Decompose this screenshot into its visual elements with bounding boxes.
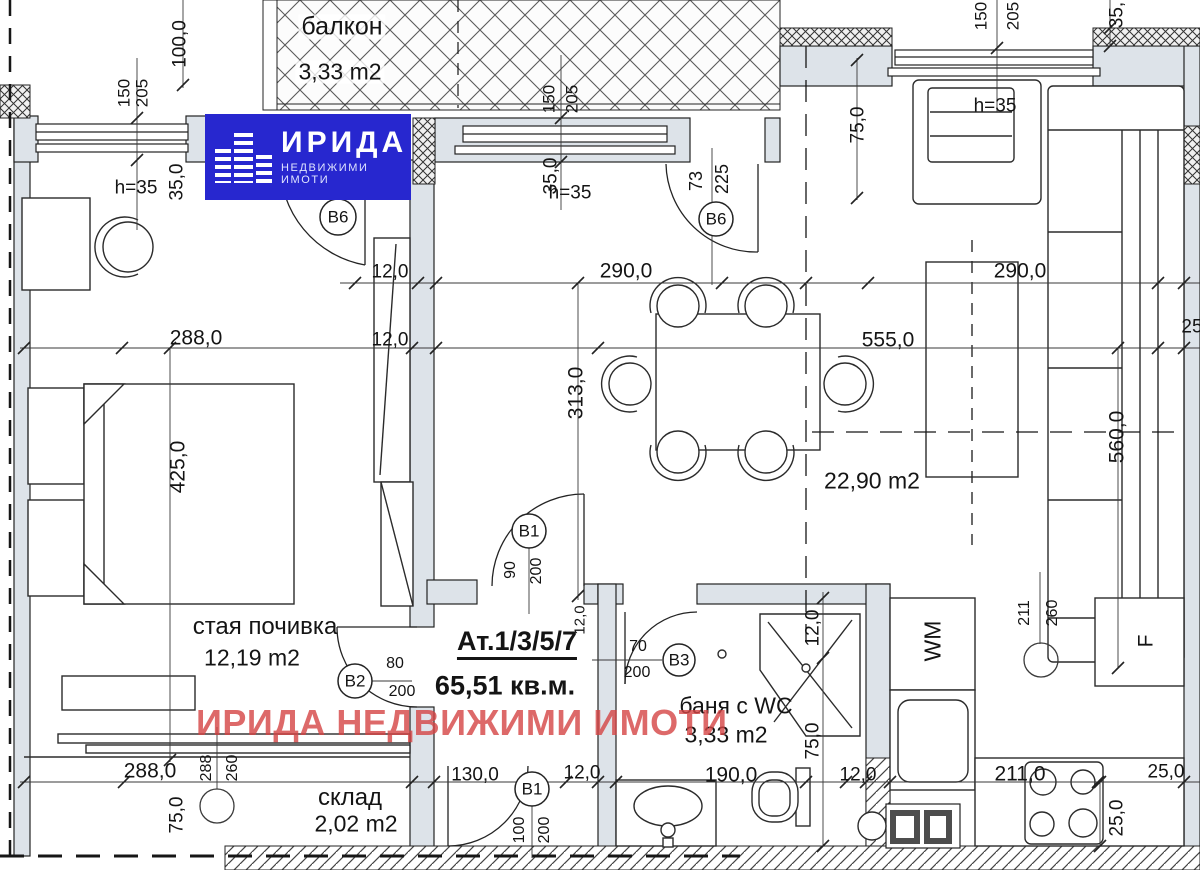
door-b2-height: 200 [389, 684, 416, 700]
agency-watermark: ИРИДА НЕДВИЖИМИ ИМОТИ [196, 702, 727, 744]
light-storage-width: 288 [199, 755, 215, 782]
door-storage-label: В1 [522, 781, 543, 798]
dim-25-a: 25,0 [1148, 763, 1185, 782]
dim-window-top-width: 150 [541, 85, 558, 113]
dim-bath-75: 75,0 [804, 723, 823, 760]
appliance-fridge-label: F [1136, 635, 1157, 648]
door-b6-bedroom-label: В6 [328, 209, 349, 226]
room-living-area: 22,90 m2 [824, 470, 920, 493]
dim-window-right-parapet: 35, [1108, 2, 1127, 28]
dim-25-right: 25 [1181, 318, 1200, 337]
dim-window-left-parapet: 35,0 [168, 164, 187, 201]
dim-290-a: 290,0 [600, 261, 653, 282]
dim-313: 313,0 [566, 367, 587, 420]
appliance-washing-machine-label: WM [922, 621, 945, 662]
dim-balcony-door-height: 225 [713, 164, 731, 194]
dim-balcony-side: 100,0 [171, 20, 190, 68]
room-storage-area: 2,02 m2 [314, 813, 397, 836]
logo-brand: ИРИДА [281, 128, 407, 158]
dim-425: 425,0 [168, 441, 189, 494]
dim-288-a: 288,0 [170, 328, 223, 349]
dim-12-a: 12,0 [372, 263, 409, 282]
note-window-left-h35: h=35 [115, 179, 158, 198]
note-window-top-h35: h=35 [549, 184, 592, 203]
light-kitchen-height: 260 [1045, 600, 1061, 627]
dim-75-b: 75,0 [168, 797, 187, 834]
agency-logo: ИРИДА НЕДВИЖИМИ ИМОТИ [205, 114, 411, 200]
dim-555: 555,0 [862, 330, 915, 351]
light-storage-height: 260 [225, 755, 241, 782]
dim-window-left-width: 150 [116, 79, 133, 107]
door-b6-balcony-label: В6 [706, 211, 727, 228]
floorplan-page: 100,0 150 205 h=35 35,0 балкон 3,33 m2 1… [0, 0, 1200, 870]
logo-buildings-icon [215, 131, 272, 183]
dim-entry-12: 12,0 [573, 605, 588, 634]
logo-tagline: НЕДВИЖИМИ ИМОТИ [281, 162, 407, 186]
door-b2-label: В2 [345, 673, 366, 690]
dim-12-d: 12,0 [564, 764, 601, 783]
note-window-right-h35: h=35 [974, 97, 1017, 116]
dim-290-b: 290,0 [994, 261, 1047, 282]
door-entry-height: 200 [529, 558, 545, 585]
dim-560: 560,0 [1107, 411, 1128, 464]
door-b3-height: 200 [624, 665, 651, 681]
light-kitchen-width: 211 [1017, 600, 1033, 626]
door-storage-height: 200 [537, 817, 553, 844]
unit-title: Ат.1/3/5/7 [457, 628, 577, 660]
door-storage-width: 100 [512, 817, 528, 844]
dim-window-right-width: 150 [973, 2, 990, 30]
unit-total-area: 65,51 кв.м. [435, 673, 575, 700]
dim-190: 190,0 [705, 765, 758, 786]
dim-12-c: 12,0 [840, 766, 877, 785]
room-balcony-area: 3,33 m2 [295, 61, 384, 84]
door-entry-width: 90 [503, 561, 519, 579]
dim-25-v: 25,0 [1108, 800, 1127, 837]
dim-window-right-sill: 205 [1005, 2, 1022, 30]
dim-window-left-sill: 205 [134, 79, 151, 107]
dim-top-right-75: 75,0 [849, 107, 868, 144]
door-b3-label: В3 [669, 652, 690, 669]
room-bedroom-area: 12,19 m2 [204, 647, 300, 670]
room-storage-name: склад [318, 786, 382, 810]
dim-130: 130,0 [451, 766, 499, 785]
dim-balcony-door-width: 73 [687, 171, 705, 191]
room-balcony-name: балкон [298, 15, 385, 40]
dim-211: 211,0 [995, 764, 1046, 785]
door-entry-label: В1 [519, 523, 540, 540]
dim-bath-12: 12,0 [804, 610, 823, 647]
dim-12-b: 12,0 [372, 331, 409, 350]
door-b3-width: 70 [629, 639, 647, 655]
dim-window-top-sill: 205 [564, 85, 581, 113]
room-bedroom-name: стая почивка [193, 615, 338, 639]
dim-288-b: 288,0 [124, 761, 177, 782]
door-b2-width: 80 [386, 656, 404, 672]
